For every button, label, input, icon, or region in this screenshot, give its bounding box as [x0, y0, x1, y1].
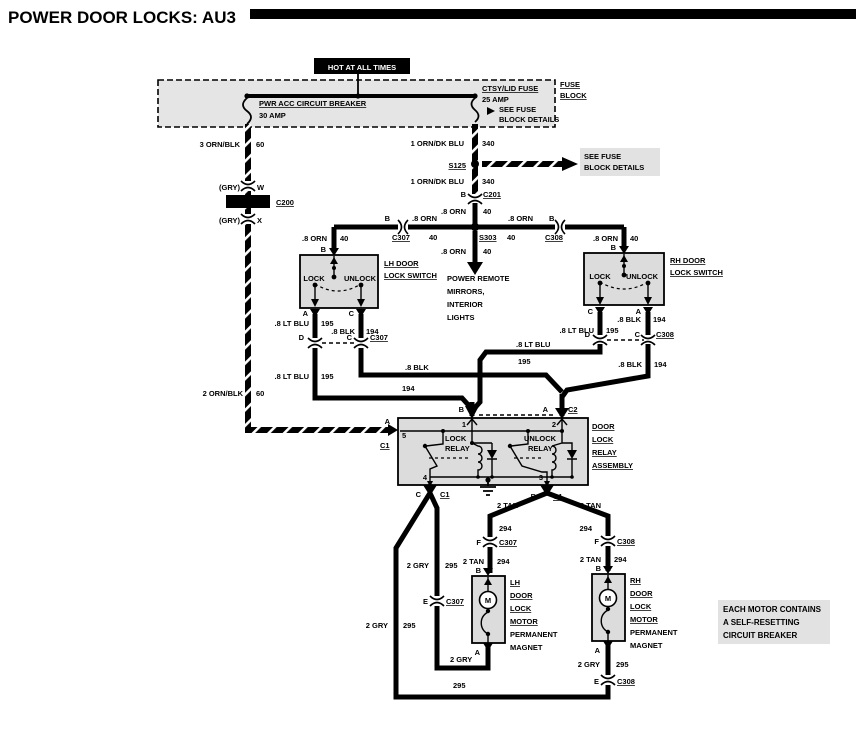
junction-dot — [244, 93, 249, 98]
wire-label: .8 ORN — [441, 207, 466, 216]
connector-label: C307 — [370, 333, 388, 342]
junction-dot — [472, 93, 477, 98]
connector-label: C201 — [483, 190, 501, 199]
wire-label: 2 ORN/BLK — [203, 389, 244, 398]
terminal-pin — [603, 641, 613, 649]
splice-label: S125 — [448, 161, 466, 170]
terminal-label: D — [585, 330, 591, 339]
connector-symbol — [468, 194, 482, 204]
see-fuse-note: SEE FUSE — [584, 152, 621, 161]
wire-label: .8 ORN — [302, 234, 327, 243]
wire-label: 2 TAN — [580, 501, 601, 510]
circuit-number: 194 — [654, 360, 667, 369]
connector-label: C307 — [446, 597, 464, 606]
connector-symbol — [430, 596, 444, 606]
fuse-note: BLOCK DETAILS — [499, 115, 559, 124]
wire-label: 2 GRY — [366, 621, 388, 630]
circuit-number: 340 — [482, 177, 495, 186]
circuit-number: 40 — [483, 207, 491, 216]
wire-label: 2 TAN — [497, 501, 518, 510]
junction-dot — [490, 475, 494, 479]
wire-label: .8 LT BLU — [516, 340, 550, 349]
load-note: LIGHTS — [447, 313, 475, 322]
wire-label: .8 ORN — [412, 214, 437, 223]
component-label: LH — [510, 578, 520, 587]
fuse-amp-label: 25 AMP — [482, 95, 509, 104]
fuse-note: SEE FUSE — [499, 105, 536, 114]
terminal-pin — [603, 566, 613, 574]
terminal-label: F — [476, 538, 481, 547]
circuit-number: 294 — [614, 555, 627, 564]
contact-dot — [622, 264, 626, 268]
component-label: LOCK — [630, 602, 652, 611]
power-door-locks-diagram: POWER DOOR LOCKS: AU3 FUSE BLOCK HOT AT … — [0, 0, 864, 737]
terminal-label: W — [257, 183, 265, 192]
page-title: POWER DOOR LOCKS: AU3 — [8, 8, 236, 27]
connector-label: C308 — [617, 677, 635, 686]
pin-number: 2 — [552, 420, 556, 429]
wire-color-label: (GRY) — [219, 183, 240, 192]
circuit-number: 195 — [606, 326, 619, 335]
terminal-label: B — [549, 214, 555, 223]
terminal-label: B — [596, 564, 602, 573]
component-label: LOCK SWITCH — [670, 268, 723, 277]
wire-label: .8 LT BLU — [275, 319, 309, 328]
wire-label: 2 GRY — [578, 660, 600, 669]
wire-label: 1 ORN/DK BLU — [411, 177, 464, 186]
motor-letter: M — [485, 596, 491, 605]
switch-position-label: LOCK — [589, 272, 611, 281]
wire-label: .8 BLK — [618, 360, 642, 369]
terminal-label: A — [543, 405, 549, 414]
connector-symbol — [601, 675, 615, 685]
terminal-label: B — [459, 405, 465, 414]
terminal-label: B — [476, 566, 482, 575]
circuit-number: 40 — [483, 247, 491, 256]
wire-label: .8 LT BLU — [275, 372, 309, 381]
wire-lh-lock-to-relay — [315, 348, 472, 409]
circuit-number: 295 — [616, 660, 629, 669]
component-label: LH DOOR — [384, 259, 419, 268]
load-note: INTERIOR — [447, 300, 483, 309]
wire-label: .8 ORN — [508, 214, 533, 223]
motor-note: EACH MOTOR CONTAINS — [723, 605, 822, 614]
circuit-number: 295 — [453, 681, 466, 690]
wire-label: .8 BLK — [405, 363, 429, 372]
connector-label: C200 — [276, 198, 294, 207]
connector-label: C307 — [499, 538, 517, 547]
terminal-label: A — [385, 417, 391, 426]
terminal-label: C — [635, 330, 641, 339]
terminal-label: E — [423, 597, 428, 606]
circuit-number: 195 — [518, 357, 531, 366]
junction-dot — [476, 475, 480, 479]
terminal-label: X — [257, 216, 262, 225]
circuit-number: 40 — [340, 234, 348, 243]
component-label: ASSEMBLY — [592, 461, 633, 470]
terminal-label: E — [594, 677, 599, 686]
component-label: RH — [630, 576, 641, 585]
relay-name-label: LOCK — [445, 434, 467, 443]
breaker-amp-label: 30 AMP — [259, 111, 286, 120]
switch-position-label: UNLOCK — [626, 272, 659, 281]
title-bar-rule — [250, 9, 856, 19]
wire-label: 2 GRY — [407, 561, 429, 570]
wire-lh-unlock-to-relay — [361, 348, 562, 392]
circuit-number: 60 — [256, 389, 264, 398]
splice-dot-s125 — [471, 160, 479, 168]
motor-letter: M — [605, 594, 611, 603]
circuit-number: 194 — [653, 315, 666, 324]
terminal-pin — [465, 406, 479, 419]
connector-label: C308 — [545, 233, 563, 242]
terminal-label: A — [595, 646, 601, 655]
switch-position-label: UNLOCK — [344, 274, 377, 283]
connector-symbol — [483, 537, 497, 547]
circuit-number: 294 — [499, 524, 512, 533]
load-note: MIRRORS, — [447, 287, 485, 296]
circuit-number: 294 — [497, 557, 510, 566]
wire-label: 3 ORN/BLK — [200, 140, 241, 149]
component-label: PERMANENT — [630, 628, 678, 637]
wire-label: 1 ORN/DK BLU — [411, 139, 464, 148]
junction-dot — [355, 93, 360, 98]
wire-color-label: (GRY) — [219, 216, 240, 225]
fuse-block-label: FUSE — [560, 80, 580, 89]
motor-note: CIRCUIT BREAKER — [723, 631, 797, 640]
terminal-label: C — [349, 309, 355, 318]
terminal-label: A — [475, 648, 481, 657]
pin-number: 5 — [402, 431, 406, 440]
arrowhead — [562, 157, 578, 171]
connector-symbol — [593, 335, 607, 345]
pin-number: 1 — [462, 420, 466, 429]
component-label: LOCK — [592, 435, 614, 444]
component-label: MOTOR — [630, 615, 658, 624]
terminal-label: B — [385, 214, 391, 223]
circuit-number: 295 — [445, 561, 458, 570]
motor-note: A SELF-RESETTING — [723, 618, 800, 627]
contact-dot — [486, 632, 490, 636]
component-label: DOOR — [592, 422, 615, 431]
terminal-label: C — [588, 307, 594, 316]
wire-label: 2 GRY — [450, 655, 472, 664]
splice-dot-s303 — [471, 223, 479, 231]
component-label: DOOR — [630, 589, 653, 598]
switch-position-label: LOCK — [303, 274, 325, 283]
circuit-number: 40 — [507, 233, 515, 242]
component-label: MAGNET — [510, 643, 543, 652]
circuit-number: 40 — [630, 234, 638, 243]
component-label: MOTOR — [510, 617, 538, 626]
contact-dot — [332, 275, 337, 280]
connector-symbol — [241, 214, 255, 224]
terminal-label: A — [303, 309, 309, 318]
wire-label: 2 TAN — [580, 555, 601, 564]
see-fuse-note: BLOCK DETAILS — [584, 163, 644, 172]
component-label: LOCK SWITCH — [384, 271, 437, 280]
connector-symbol — [308, 338, 322, 348]
circuit-number: 295 — [403, 621, 416, 630]
connector-label: C307 — [392, 233, 410, 242]
splice-label: S303 — [479, 233, 497, 242]
wire-label: .8 ORN — [441, 247, 466, 256]
terminal-label: D — [299, 333, 305, 342]
circuit-number: 194 — [402, 384, 415, 393]
contact-dot — [606, 630, 610, 634]
connector-label: C1 — [440, 490, 450, 499]
relay-name-label: RELAY — [528, 444, 553, 453]
connector-label: C1 — [380, 441, 390, 450]
terminal-label: C — [347, 333, 353, 342]
fuse-label: CTSY/LID FUSE — [482, 84, 538, 93]
wiring-diagram-page: POWER DOOR LOCKS: AU3 FUSE BLOCK HOT AT … — [0, 0, 864, 737]
terminal-label: B — [321, 245, 327, 254]
terminal-label: C — [416, 490, 422, 499]
hot-at-all-times-label: HOT AT ALL TIMES — [328, 63, 396, 72]
circuit-number: 195 — [321, 372, 334, 381]
component-label: DOOR — [510, 591, 533, 600]
connector-symbol — [601, 536, 615, 546]
fuse-block-label: BLOCK — [560, 91, 587, 100]
terminal-label: B — [461, 190, 467, 199]
terminal-label: B — [611, 243, 617, 252]
relay-name-label: UNLOCK — [524, 434, 557, 443]
connector-symbol — [241, 181, 255, 191]
circuit-number: 60 — [256, 140, 264, 149]
component-label: LOCK — [510, 604, 532, 613]
contact-dot — [332, 266, 336, 270]
relay-name-label: RELAY — [445, 444, 470, 453]
connector-symbol — [398, 220, 408, 234]
load-note: POWER REMOTE — [447, 274, 510, 283]
wire-label: 2 TAN — [463, 557, 484, 566]
circuit-number: 294 — [579, 524, 592, 533]
terminal-label: F — [594, 537, 599, 546]
connector-symbol — [555, 220, 565, 234]
circuit-number: 340 — [482, 139, 495, 148]
component-label: RELAY — [592, 448, 617, 457]
connector-c200-block — [226, 195, 270, 208]
connector-label: C308 — [656, 330, 674, 339]
circuit-number: 40 — [429, 233, 437, 242]
component-label: PERMANENT — [510, 630, 558, 639]
wire-label: .8 BLK — [617, 315, 641, 324]
wire-label: .8 ORN — [593, 234, 618, 243]
connector-label: C2 — [568, 405, 578, 414]
component-label: MAGNET — [630, 641, 663, 650]
breaker-label: PWR ACC CIRCUIT BREAKER — [259, 99, 367, 108]
component-label: RH DOOR — [670, 256, 706, 265]
connector-symbol — [354, 338, 368, 348]
terminal-pin — [483, 643, 493, 651]
connector-label: C308 — [617, 537, 635, 546]
